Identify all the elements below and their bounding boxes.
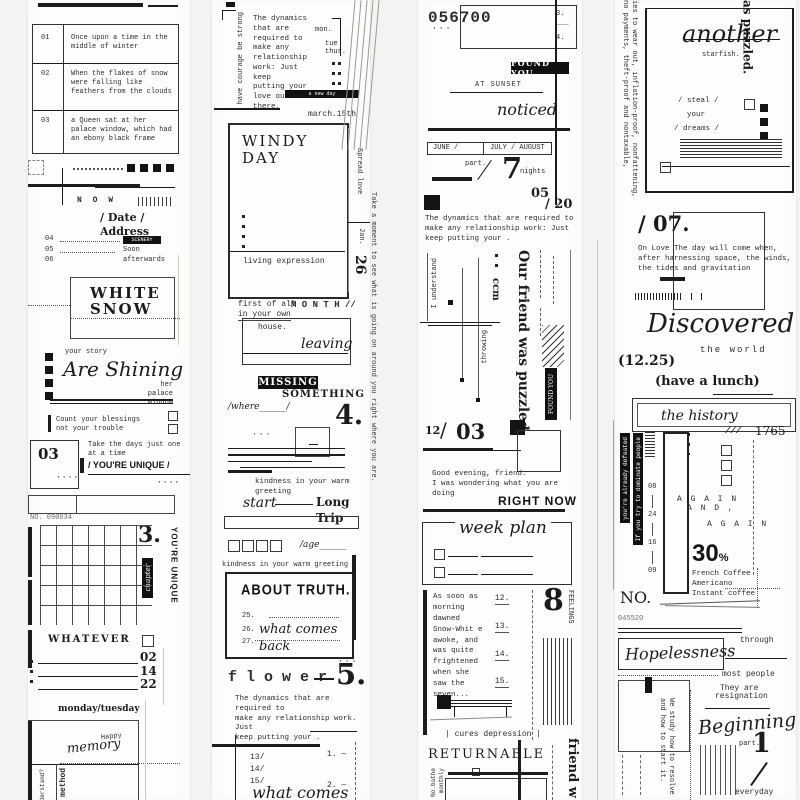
count-blessings: Count your blessings not your trouble [56, 416, 140, 434]
black-square [153, 164, 161, 172]
black-square [45, 366, 53, 374]
flower-label: f l o w e r [228, 668, 327, 688]
tick [652, 523, 653, 536]
checkbox [721, 445, 732, 456]
dotted-cross-h [725, 588, 780, 589]
dot-column [338, 62, 341, 92]
where-blank: /where______/ [228, 402, 290, 414]
most-people-label: most people [722, 670, 775, 680]
story-row-num: 03 [41, 117, 49, 126]
bench-leg [454, 706, 455, 717]
column-line [348, 128, 349, 292]
barcode-tick [691, 293, 692, 300]
our-friend-vertical: Our friend was puzzled. [514, 250, 532, 436]
heavy-rule [423, 448, 493, 451]
rule [725, 658, 787, 659]
we-study-vertical: We study how to resolve and how to start… [657, 698, 675, 800]
stripe-block [543, 638, 575, 725]
slash-mark [750, 762, 768, 786]
num-12: 12. [495, 594, 509, 605]
small-box [295, 427, 330, 457]
rule [240, 467, 345, 468]
tape-strip-3: 3. ___ 4. ___ 056700 ··· FOUND YOU AT SU… [418, 0, 582, 800]
snow-word: SNOW [90, 300, 152, 318]
memory-script: memory [66, 736, 121, 758]
num-15: 15. [495, 677, 509, 688]
checkbox [168, 424, 178, 434]
bracket-line [332, 18, 341, 19]
i-understand-vertical: I understand [431, 258, 440, 308]
big-8: 8 [543, 581, 564, 620]
num-16: 16 [648, 539, 656, 548]
have-a-lunch-label: (have a lunch) [655, 374, 760, 391]
dot-column [332, 62, 335, 92]
dashed-box [28, 160, 44, 175]
steal-label: / steal / [678, 97, 719, 107]
black-square [166, 164, 174, 172]
stripe-block-horizontal [680, 139, 782, 159]
wear-out-vertical: ies to wear out, inflation-proof, nonfat… [620, 0, 638, 205]
top-mark [226, 2, 235, 7]
field-3: 3. ___ [556, 10, 576, 28]
black-square [45, 379, 53, 387]
take-a-moment-vertical: Take a moment to see what is going on ar… [368, 192, 377, 482]
rule [662, 166, 790, 167]
understand-vertical: Understand? [39, 769, 47, 800]
row-05: 05 [45, 246, 53, 255]
dots: ···· [56, 473, 79, 483]
rule [713, 394, 773, 395]
start-script: start [243, 494, 276, 512]
rule [38, 663, 138, 664]
heavy-rule [228, 470, 272, 473]
windy-day-title: WINDY DAY [242, 133, 308, 168]
hand-grid [40, 525, 152, 625]
slashes: /// [725, 426, 741, 438]
barcode [138, 197, 174, 206]
story-row-num: 01 [41, 34, 49, 43]
take-days: Take the days just one at a time [88, 441, 180, 459]
cell-divider [483, 143, 484, 154]
barcode-tick [701, 293, 702, 300]
on-love-paragraph: On Love The day will come when, after ha… [638, 245, 791, 274]
bench-line [450, 703, 512, 704]
row-04: 04 [45, 235, 53, 244]
write-line [448, 574, 478, 575]
week-plan-title: week plan [455, 517, 551, 539]
date-12: 12 [425, 424, 440, 438]
heavy-rule [428, 128, 570, 131]
cross-rule [420, 322, 500, 323]
leaving-box: house. leaving [242, 318, 351, 365]
youre-unique-label: / YOU'RE UNIQUE / [88, 460, 170, 472]
big-1: 1 [752, 726, 771, 761]
starfish-label: starfish. [702, 51, 740, 60]
cross-mark [62, 168, 63, 205]
found-you-vertical-banner: FOUND YOU [545, 368, 557, 420]
dotted-line [73, 168, 123, 170]
ccm-vertical: ccm [489, 278, 502, 301]
checkbox [721, 460, 732, 471]
box-rule [243, 353, 348, 354]
bathe-vertical: No.bathe [430, 768, 438, 797]
living-expression: living expression [243, 257, 325, 267]
date-03: 03 [456, 418, 485, 445]
heavy-dash [660, 277, 685, 281]
cross-line [235, 735, 236, 800]
dashed-line [552, 745, 553, 800]
story-table: 01 Once upon a time in the middle of win… [32, 24, 179, 154]
box-marker [660, 162, 671, 173]
leader-dots [60, 252, 115, 253]
dots: ··· [252, 430, 272, 440]
date-20: / 20 [545, 197, 572, 214]
mon-label: mon. [315, 26, 332, 35]
rule [50, 399, 173, 401]
write-line [448, 556, 478, 557]
num-13: 13. [495, 622, 509, 633]
num-13: 13/ [250, 753, 264, 763]
method-vertical: method [59, 768, 69, 797]
black-square [45, 353, 53, 361]
top-mark [148, 5, 178, 7]
feelings-vertical: FEELINGS [565, 590, 574, 624]
your-label: your [687, 111, 705, 121]
months-box: JUNE / JULY / AUGUST [427, 142, 552, 155]
box-rule [230, 251, 345, 252]
checkbox [270, 540, 282, 552]
stripe-block [700, 745, 740, 795]
black-square [760, 104, 768, 112]
tape-strip-4: ies to wear out, inflation-proof, nonfat… [615, 0, 796, 800]
study-box [618, 680, 690, 752]
everyday-label: everyday [735, 788, 773, 798]
what-comes-back-bottom: what comes back [252, 783, 370, 800]
bench-leg [506, 706, 507, 717]
tape-strip-2: have courage be strong The dynamics that… [212, 0, 370, 800]
rule [88, 474, 190, 475]
bench-line [450, 700, 512, 701]
defeated-banner: you're already defeated [620, 433, 630, 523]
cross-rule [428, 325, 492, 326]
dot-column [495, 254, 498, 270]
gap-line [597, 240, 598, 800]
tiny-banner: a new day [285, 90, 359, 98]
dotted-line [70, 318, 180, 319]
nights-label: nights [520, 168, 545, 177]
dot [418, 0, 421, 3]
edge-line [178, 255, 179, 345]
serial-number: NO. 090034 [30, 514, 72, 523]
again-2: A N D , [687, 504, 735, 514]
part-label: part. [465, 160, 486, 169]
num-24: 24 [648, 511, 656, 520]
blank-cells [28, 495, 175, 514]
heavy-cross-v [518, 740, 521, 800]
dashed-line [532, 590, 533, 740]
hopelessness-box: Hopelessness [618, 638, 724, 670]
table-divider [63, 25, 64, 153]
dash-line [314, 678, 334, 680]
dominate-label: If you try to dominate people [635, 437, 642, 541]
rule [705, 708, 770, 709]
afterwards-label: afterwards [123, 256, 165, 265]
dashed-line [540, 308, 541, 336]
edge-line [163, 648, 164, 705]
write-line [481, 556, 533, 557]
dashed-line [753, 440, 754, 575]
dotted-line [269, 617, 339, 618]
dotted-underline [255, 640, 340, 641]
dotted-line [28, 305, 70, 306]
story-row-text: a Queen sat at her palace window, which … [71, 117, 173, 144]
black-square [127, 164, 135, 172]
what-comes-back-script: what comes back [259, 622, 352, 656]
dotted-cross-v [757, 568, 758, 608]
defeated-label: you're already defeated [622, 437, 629, 520]
age-blank: /age______ [300, 540, 347, 552]
soon-label: Soon [123, 246, 140, 255]
date-slash: / [440, 417, 447, 443]
returnable-label: RETURNABLE [428, 747, 545, 764]
squiggle-line [660, 600, 760, 604]
corner-bracket [222, 10, 236, 11]
heavy-rule [212, 744, 320, 747]
checkbox [228, 540, 240, 552]
dashed-line [622, 755, 623, 795]
thin-vertical [427, 253, 428, 321]
checkbox [142, 635, 154, 647]
edge-bar [423, 590, 427, 735]
june-label: JUNE / [433, 144, 458, 153]
week-plan-box: week plan [422, 522, 572, 585]
truth-27: 27. [242, 638, 255, 647]
coffee-list: French Coffee Americano Instant coffee [692, 570, 755, 599]
our-friend-vertical-bottom: Our friend w [563, 738, 582, 800]
whatever-label: WHATEVER [48, 633, 131, 646]
about-truth-title: ABOUT TRUTH. [241, 581, 351, 600]
rule [95, 187, 175, 188]
tick [652, 551, 653, 564]
write-line [481, 574, 533, 575]
discovered-script: Discovered [647, 308, 794, 342]
noticed-script: noticed [497, 100, 557, 121]
strike-line [685, 39, 780, 40]
num-22: 22 [140, 677, 157, 693]
heavy-rule [432, 177, 472, 181]
rule [50, 403, 173, 404]
through-label: through [740, 636, 774, 646]
corner-bracket [222, 10, 223, 20]
thin-vertical [462, 268, 463, 380]
edge-bar [28, 721, 32, 800]
dot-square [460, 378, 464, 382]
throwing-vertical: throwing [481, 330, 490, 364]
dot-column [30, 660, 33, 690]
rule [310, 731, 357, 732]
mini-barcode [645, 432, 655, 457]
another-box: another starfish. / steal / your / dream… [645, 8, 794, 193]
diagonal-hatch [542, 325, 564, 367]
snow-white-text: As soon as morning dawned Snow-Whit e aw… [433, 592, 485, 701]
tick [652, 495, 653, 508]
table-rule [33, 110, 178, 111]
dotted-line [690, 690, 691, 800]
checkbox [721, 475, 732, 486]
tape-strip-1: 01 Once upon a time in the middle of win… [28, 0, 190, 800]
offset-box [517, 430, 561, 472]
about-truth-box: ABOUT TRUTH. 25. 26. 27. what comes back [225, 572, 354, 659]
dotted-line [618, 675, 718, 676]
edge-bar [28, 580, 32, 625]
dots: ···· [157, 478, 180, 488]
now-label: N O W [77, 196, 116, 206]
dashed-line [540, 250, 541, 298]
dots: ··· [432, 24, 452, 34]
story-row-text: Once upon a time in the middle of winter [71, 34, 173, 52]
thirty-percent: 30% [692, 538, 728, 569]
dash-line [275, 504, 313, 505]
dot-column [242, 215, 245, 251]
row-06: 06 [45, 256, 53, 265]
ground-line [430, 717, 512, 721]
the-world-label: the world [700, 345, 767, 357]
checkbox [256, 540, 268, 552]
found-you-banner: FOUND YOU [511, 62, 569, 74]
jan-vertical: Jan. [356, 228, 365, 245]
dash [309, 444, 318, 445]
again-3: A G A I N [707, 520, 768, 530]
thin-vertical [478, 258, 479, 400]
black-square [437, 695, 451, 709]
box-03: 03 ···· [30, 440, 79, 489]
checkbox [434, 549, 445, 560]
tall-box [663, 432, 689, 594]
at-sunset-label: AT SUNSET [475, 81, 522, 90]
bottom-box [445, 778, 547, 800]
rule [618, 632, 742, 633]
dreams-label: / dreams / [674, 125, 719, 135]
rule [450, 92, 543, 93]
cell-divider [56, 764, 57, 800]
history-script: the history [661, 407, 738, 425]
gap-line [613, 420, 614, 590]
big-5: 5. [336, 656, 366, 694]
resignation-label: resignation [715, 692, 768, 702]
barcode [635, 293, 681, 300]
edge-bar [28, 527, 32, 577]
num-08: 08 [648, 483, 656, 492]
first-of-all: first of all [238, 300, 296, 310]
dot-square [476, 398, 480, 402]
tick-bar [80, 458, 84, 473]
dot-square [448, 300, 453, 305]
thin-vertical [570, 250, 571, 420]
black-square [140, 164, 148, 172]
num-26-vertical: 26 [351, 255, 369, 274]
windy-day-box: WINDY DAY living expression [228, 123, 349, 299]
leader-dots [60, 241, 120, 242]
cures-depression: | cures depression | [445, 730, 541, 740]
courage-vertical: have courage be strong [237, 12, 246, 104]
rule [228, 454, 345, 456]
table-rule [33, 63, 178, 64]
table-rule [29, 764, 138, 765]
num-14: 14. [495, 650, 509, 661]
dashed-line [553, 256, 554, 304]
another-script: another [682, 19, 777, 50]
rule [38, 676, 138, 677]
percent-sign: % [719, 552, 729, 564]
checkbox [434, 567, 445, 578]
field-4: 4. ___ [556, 34, 576, 52]
beginning-script: Beginning [697, 708, 796, 741]
white-snow-title: WHITESNOW [90, 286, 161, 318]
truth-26: 26. [242, 626, 255, 635]
box-marker [744, 99, 755, 110]
right-now-label: RIGHT NOW [498, 494, 577, 510]
memory-table: Happy memory Understand? method [28, 720, 139, 800]
blank-bar [224, 516, 359, 529]
kindness-line: kindness in your warm greeting [222, 561, 348, 570]
rule [618, 628, 742, 629]
big-4: 4. [335, 398, 363, 433]
date-1225: (12.25) [618, 352, 675, 370]
dotted-line [60, 763, 180, 764]
top-mark [38, 3, 143, 7]
dynamics-paragraph: The dynamics that are required to make a… [425, 215, 574, 244]
heavy-rule [423, 509, 565, 512]
squiggle-line [665, 605, 760, 608]
rule [228, 448, 345, 449]
dominate-banner: If you try to dominate people [633, 433, 643, 545]
leaving-script: leaving [301, 335, 352, 353]
spread-love-vertical: Spread love [354, 148, 363, 194]
bench-line [450, 706, 512, 707]
rule [214, 108, 280, 110]
blank-1: 1. — [327, 750, 346, 760]
black-tick [645, 677, 652, 693]
palace-label: her palace window [133, 381, 173, 408]
black-square [424, 195, 440, 210]
house-label: house. [258, 323, 287, 333]
cell-divider [76, 496, 77, 513]
rule [348, 222, 370, 223]
num-14: 14/ [250, 765, 264, 775]
thur-label: thur. [325, 48, 346, 57]
story-row-text: When the flakes of snow were falling lik… [71, 70, 173, 97]
black-square [760, 118, 768, 126]
heavy-cross-h [448, 772, 548, 775]
scenery-badge: SCENERY [123, 236, 161, 244]
are-shining-script: Are Shining [63, 356, 183, 382]
rule [493, 450, 521, 451]
thirty: 30 [692, 540, 719, 567]
rule [228, 461, 312, 462]
month-label: M O N T H // [291, 300, 356, 312]
washi-tape-sheet: 01 Once upon a time in the middle of win… [0, 0, 800, 800]
num-09: 09 [648, 567, 656, 576]
checkbox [242, 540, 254, 552]
hopelessness-script: Hopelessness [625, 641, 736, 666]
story-row-num: 02 [41, 70, 49, 79]
youre-unique-vertical: YOU'RE UNIQUE [168, 527, 178, 604]
dashed-line [640, 755, 641, 795]
no-label: NO. [620, 588, 651, 609]
dynamics-paragraph-2: The dynamics that are required to make a… [235, 695, 370, 744]
edge-line [145, 700, 146, 800]
checkbox [168, 411, 178, 421]
